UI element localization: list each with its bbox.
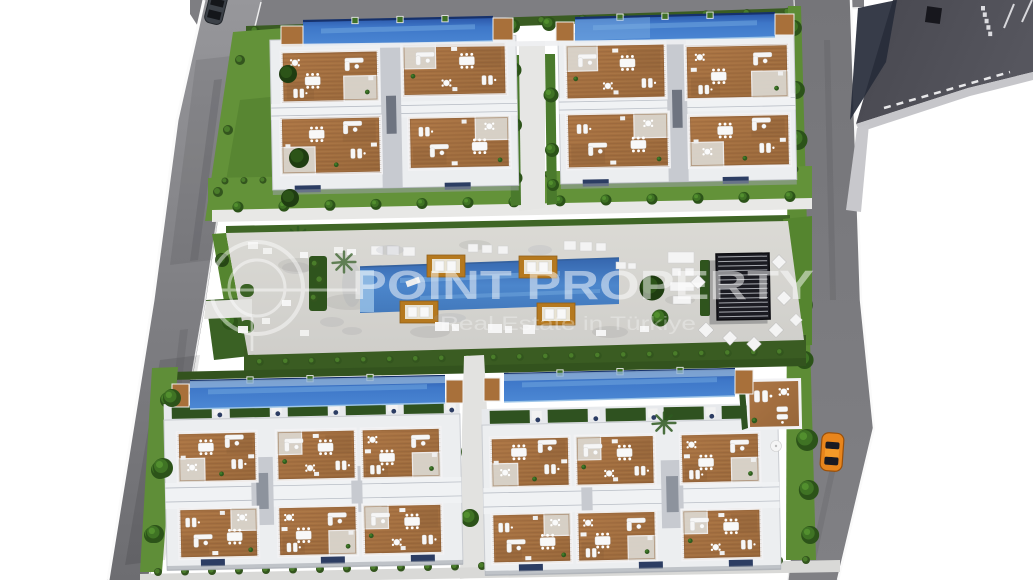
svg-text:POINT PROPERTY: POINT PROPERTY: [352, 262, 814, 308]
svg-text:Real Estate in Türkiye: Real Estate in Türkiye: [440, 314, 696, 335]
